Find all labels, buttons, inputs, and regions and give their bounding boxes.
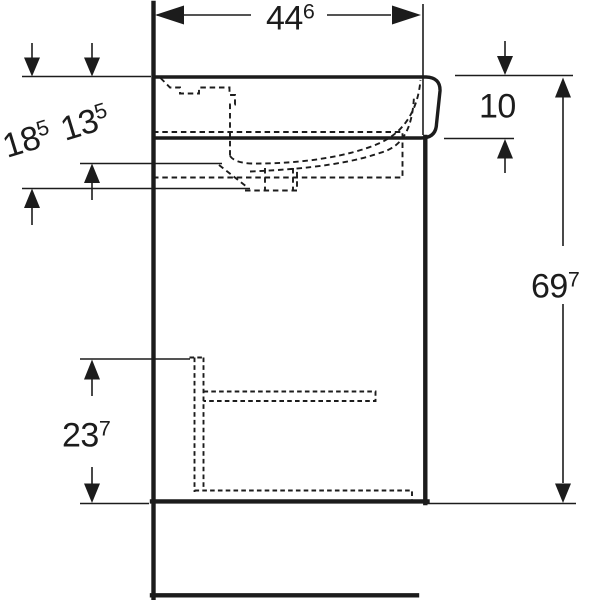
dimension-front-height: 10 [444, 41, 573, 173]
arrow-left-icon [155, 6, 184, 25]
arrow-down-icon [84, 484, 100, 504]
basin-profile [152, 77, 440, 138]
total-height-label: 697 [531, 268, 580, 306]
technical-drawing: 446 135 185 10 697 [0, 0, 600, 600]
arrow-up-icon [555, 78, 571, 98]
trap-funnel-dashed [219, 165, 247, 187]
arrow-down-icon [497, 56, 513, 75]
arrow-down-icon [555, 484, 571, 504]
bowl-depth-label: 135 [56, 98, 114, 149]
overflow-channel-dashed [161, 78, 236, 156]
drawer-rail-dashed [204, 392, 376, 402]
drawer-bottom-dashed [195, 491, 413, 500]
trap-depth-label: 185 [0, 115, 56, 166]
arrow-up-icon [84, 360, 100, 380]
arrow-down-icon [84, 58, 100, 77]
arrow-up-icon [24, 189, 40, 209]
arrow-down-icon [24, 58, 40, 77]
arrow-up-icon [84, 164, 100, 184]
arrow-up-icon [497, 139, 513, 159]
drawing-canvas: 446 135 185 10 697 [0, 0, 600, 600]
drawer-hidden-lines [190, 358, 413, 500]
washbasin-outline [152, 77, 440, 138]
bowl-inner-curve-dashed [230, 80, 421, 164]
arrow-right-icon [392, 6, 421, 25]
lower-clearance-label: 237 [62, 417, 111, 455]
dimension-total-height: 697 [427, 78, 580, 504]
bowl-outer-curve-dashed [250, 96, 414, 172]
dimension-width: 446 [155, 0, 423, 135]
basin-hidden-lines [153, 78, 421, 191]
wall-and-floor [152, 3, 417, 598]
dimension-depths-left: 135 185 [0, 43, 250, 225]
dimension-lower-clearance: 237 [62, 359, 190, 504]
trap-body-dashed [245, 171, 297, 191]
width-label: 446 [266, 0, 315, 38]
cabinet-outline [152, 137, 428, 503]
front-height-label: 10 [479, 88, 516, 126]
